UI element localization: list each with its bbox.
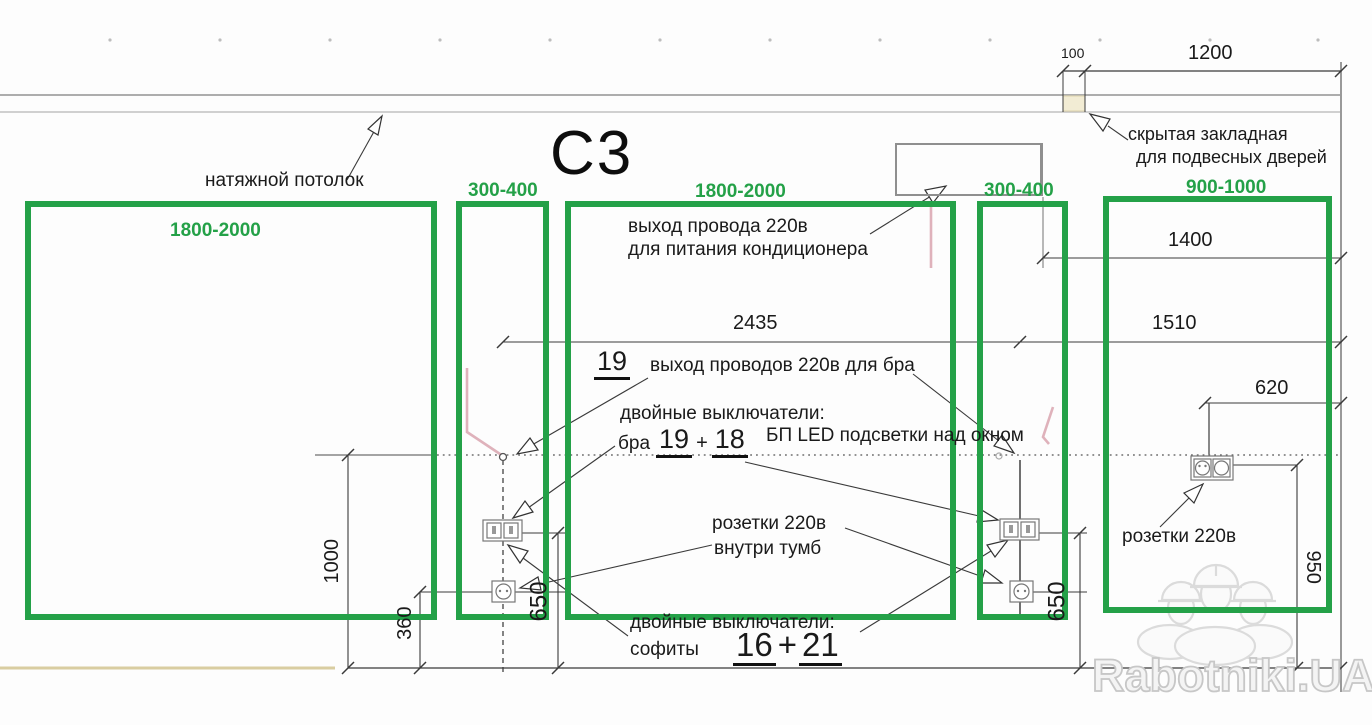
- bra-number-1: 19: [656, 426, 692, 458]
- bra-word: бра: [618, 433, 650, 458]
- zone-box-4: [977, 201, 1068, 620]
- dim-1200: 1200: [1188, 42, 1233, 64]
- sockets-right-label: розетки 220в: [1122, 526, 1236, 547]
- switches-bra-title: двойные выключатели:: [620, 403, 825, 424]
- hidden-mount-label-line1: скрытая закладная: [1128, 124, 1288, 144]
- zone-box-5: [1103, 196, 1332, 613]
- zone-box-1: [25, 201, 437, 620]
- top-dimension-lines: [1057, 65, 1347, 112]
- switches-bra-numbers: бра 19 + 18: [618, 426, 748, 458]
- hidden-mount-label-line2: для подвесных дверей: [1136, 147, 1327, 167]
- drawing-canvas: 1800-2000 300-400 1800-2000 300-400 900-…: [0, 0, 1372, 725]
- dim-620: 620: [1255, 377, 1288, 399]
- page-title: С3: [550, 118, 633, 189]
- sockets-cabinets-label-line2: внутри тумб: [714, 538, 821, 559]
- dim-1000: 1000: [321, 538, 343, 584]
- zone-box-2: [456, 201, 549, 620]
- dim-360: 360: [394, 603, 416, 643]
- soffits-word: софиты: [630, 639, 699, 660]
- sockets-cabinets-label-line1: розетки 220в: [712, 513, 826, 534]
- zone-label-3: 1800-2000: [695, 181, 786, 203]
- ac-wire-label-line1: выход провода 220в: [628, 216, 808, 237]
- dim-2435: 2435: [733, 312, 778, 334]
- zone-label-5: 900-1000: [1186, 177, 1266, 199]
- ceiling-lines: [0, 95, 1341, 112]
- zone-label-1: 1800-2000: [170, 220, 261, 242]
- dim-650-left: 650: [527, 579, 554, 623]
- watermark-text: Rabotniki.UA: [1092, 650, 1372, 702]
- soffits-numbers: 16 + 21: [733, 628, 842, 666]
- dim-1400: 1400: [1168, 229, 1213, 251]
- soffit-number-2: 21: [799, 628, 842, 666]
- dim-100: 100: [1061, 46, 1084, 62]
- soffit-plus-sign: +: [776, 628, 799, 661]
- bra-number-2: 18: [712, 426, 748, 458]
- bra-wire-label: выход проводов 220в для бра: [650, 355, 915, 376]
- dim-950: 950: [1302, 545, 1324, 589]
- dim-1510: 1510: [1152, 312, 1197, 334]
- plus-sign: +: [692, 432, 712, 458]
- ceiling-label: натяжной потолок: [205, 170, 364, 191]
- led-psu-label: БП LED подсветки над окном: [766, 425, 1024, 446]
- reference-dots: [108, 38, 1319, 41]
- hidden-mount-highlight: [1063, 96, 1085, 111]
- bra-circuit-number: 19: [594, 348, 630, 380]
- dim-650-right: 650: [1045, 579, 1072, 623]
- zone-label-4: 300-400: [984, 180, 1054, 202]
- zone-label-2: 300-400: [468, 180, 538, 202]
- soffit-number-1: 16: [733, 628, 776, 666]
- ac-wire-label-line2: для питания кондиционера: [628, 239, 868, 260]
